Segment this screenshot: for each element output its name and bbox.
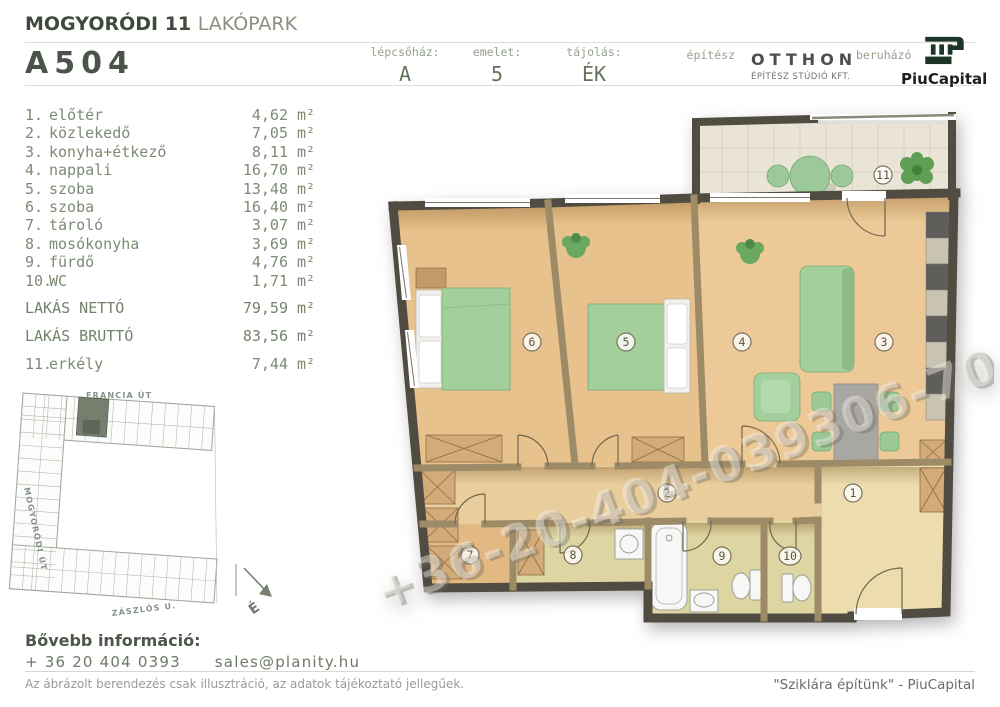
room-area: 8,11 bbox=[201, 143, 288, 161]
street-label-zaszlos-u: ZÁSZLÓS U. bbox=[111, 599, 177, 618]
architect-subtitle: ÉPÍTÉSZ STÚDIÓ KFT. bbox=[751, 72, 850, 82]
room-name: konyha+étkező bbox=[49, 143, 201, 161]
total-net-label: LAKÁS NETTÓ bbox=[25, 295, 201, 323]
room-area-unit: m² bbox=[288, 198, 330, 216]
meta-floor-label: emelet: bbox=[442, 45, 552, 59]
project-name-light: LAKÓPARK bbox=[198, 13, 297, 35]
room-name: mosókonyha bbox=[49, 235, 201, 253]
room-area: 13,48 bbox=[201, 180, 288, 198]
room-area-unit: m² bbox=[288, 161, 330, 179]
room-list-row: 1. előtér 4,62 m² bbox=[25, 106, 330, 124]
meta-orientation: tájolás: ÉK bbox=[539, 45, 649, 86]
room-label-1: 1 bbox=[850, 486, 857, 500]
room-list-row: 10. WC 1,71 m² bbox=[25, 272, 330, 290]
total-net-unit: m² bbox=[288, 295, 330, 323]
room-list-row: 4. nappali 16,70 m² bbox=[25, 161, 330, 179]
room-name: nappali bbox=[49, 161, 201, 179]
room-list-row: 2. közlekedő 7,05 m² bbox=[25, 124, 330, 142]
room-number: 8. bbox=[25, 235, 49, 253]
room-number: 10. bbox=[25, 272, 49, 290]
toilet-bowl bbox=[732, 573, 750, 599]
room-list-row: 8. mosókonyha 3,69 m² bbox=[25, 235, 330, 253]
footer-divider bbox=[25, 671, 975, 672]
room-area-unit: m² bbox=[288, 272, 330, 290]
toilet-tank bbox=[782, 574, 793, 602]
meta-orientation-label: tájolás: bbox=[539, 45, 649, 59]
datasheet-page: MOGYORÓDI 11 LAKÓPARK A504 lépcsőház: A … bbox=[0, 0, 1000, 707]
balcony-name: erkély bbox=[49, 351, 201, 379]
room-number: 4. bbox=[25, 161, 49, 179]
balcony-table bbox=[790, 156, 830, 196]
room-list-row: 5. szoba 13,48 m² bbox=[25, 180, 330, 198]
toilet-tank bbox=[750, 570, 761, 600]
site-plan-highlighted-unit bbox=[76, 397, 109, 437]
balcony-unit: m² bbox=[288, 351, 330, 379]
room-name: közlekedő bbox=[49, 124, 201, 142]
room-label-9: 9 bbox=[719, 549, 726, 563]
entry-door-opening bbox=[854, 608, 902, 620]
contact-email: sales@planity.hu bbox=[215, 653, 360, 671]
balcony-row: 11. erkély 7,44 m² bbox=[25, 351, 330, 379]
room-number: 9. bbox=[25, 253, 49, 271]
room-label-4: 4 bbox=[739, 335, 746, 349]
developer-name: PiuCapital bbox=[901, 70, 987, 88]
room-number: 3. bbox=[25, 143, 49, 161]
room-area: 3,07 bbox=[201, 216, 288, 234]
toilet-bowl bbox=[793, 575, 811, 601]
meta-orientation-value: ÉK bbox=[539, 62, 649, 86]
totals-block: LAKÁS NETTÓ 79,59 m² LAKÁS BRUTTÓ 83,56 … bbox=[25, 295, 330, 350]
room-area-unit: m² bbox=[288, 106, 330, 124]
room-label-5: 5 bbox=[623, 335, 630, 349]
total-gross-area: 83,56 bbox=[201, 323, 288, 351]
room-area-unit: m² bbox=[288, 143, 330, 161]
room-number: 6. bbox=[25, 198, 49, 216]
room-name: tároló bbox=[49, 216, 201, 234]
unit-code: A504 bbox=[25, 46, 135, 81]
room-list-row: 6. szoba 16,40 m² bbox=[25, 198, 330, 216]
contact-heading: Bővebb információ: bbox=[25, 631, 201, 650]
room-area: 3,69 bbox=[201, 235, 288, 253]
room-area-unit: m² bbox=[288, 124, 330, 142]
room-list: 1. előtér 4,62 m² 2. közlekedő 7,05 m² 3… bbox=[25, 106, 330, 290]
meta-floor-value: 5 bbox=[442, 62, 552, 86]
room-name: szoba bbox=[49, 180, 201, 198]
room-number: 2. bbox=[25, 124, 49, 142]
north-letter: É bbox=[245, 599, 263, 618]
piucapital-column-icon bbox=[921, 35, 967, 65]
room-list-row: 7. tároló 3,07 m² bbox=[25, 216, 330, 234]
room-name: előtér bbox=[49, 106, 201, 124]
room-number: 1. bbox=[25, 106, 49, 124]
room-area: 7,05 bbox=[201, 124, 288, 142]
room-list-row: 9. fürdő 4,76 m² bbox=[25, 253, 330, 271]
room-label-6: 6 bbox=[529, 335, 536, 349]
total-gross-label: LAKÁS BRUTTÓ bbox=[25, 323, 201, 351]
room-area-unit: m² bbox=[288, 253, 330, 271]
room-number: 5. bbox=[25, 180, 49, 198]
room-area-unit: m² bbox=[288, 216, 330, 234]
north-arrow-icon: É bbox=[236, 564, 272, 618]
room-area: 4,76 bbox=[201, 253, 288, 271]
room-number: 7. bbox=[25, 216, 49, 234]
contact-row: + 36 20 404 0393 sales@planity.hu bbox=[25, 653, 360, 671]
developer-logo: PiuCapital bbox=[901, 35, 987, 88]
page-title: MOGYORÓDI 11 LAKÓPARK bbox=[25, 13, 297, 35]
balcony-num: 11. bbox=[25, 351, 49, 379]
room-area: 1,71 bbox=[201, 272, 288, 290]
room-label-3: 3 bbox=[881, 335, 888, 349]
room-area: 4,62 bbox=[201, 106, 288, 124]
total-net-row: LAKÁS NETTÓ 79,59 m² bbox=[25, 295, 330, 323]
total-gross-unit: m² bbox=[288, 323, 330, 351]
room-name: WC bbox=[49, 272, 201, 290]
architect-label: építész bbox=[655, 48, 735, 62]
room-area: 16,70 bbox=[201, 161, 288, 179]
street-label-francia-ut: FRANCIA ÚT bbox=[86, 389, 152, 400]
room-label-11: 11 bbox=[876, 168, 890, 182]
floor-plan: 1 2 3 4 5 6 7 8 9 10 11 bbox=[372, 102, 994, 638]
room-list-row: 3. konyha+étkező 8,11 m² bbox=[25, 143, 330, 161]
architect-name: OTTHON bbox=[751, 50, 857, 69]
room-name: szoba bbox=[49, 198, 201, 216]
room-area-unit: m² bbox=[288, 235, 330, 253]
room-label-10: 10 bbox=[783, 549, 797, 563]
header-divider-top bbox=[25, 42, 975, 43]
meta-floor: emelet: 5 bbox=[442, 45, 552, 86]
room-name: fürdő bbox=[49, 253, 201, 271]
site-plan: FRANCIA ÚT MOGYORÓDI ÚT ZÁSZLÓS U. É bbox=[8, 384, 308, 630]
total-gross-row: LAKÁS BRUTTÓ 83,56 m² bbox=[25, 323, 330, 351]
contact-phone: + 36 20 404 0393 bbox=[25, 653, 181, 671]
room-area-unit: m² bbox=[288, 180, 330, 198]
project-name-bold: MOGYORÓDI 11 bbox=[25, 13, 191, 35]
footer-slogan: "Sziklára építünk" - PiuCapital bbox=[773, 677, 975, 693]
disclaimer-text: Az ábrázolt berendezés csak illusztráció… bbox=[25, 677, 464, 691]
total-net-area: 79,59 bbox=[201, 295, 288, 323]
room-area: 16,40 bbox=[201, 198, 288, 216]
balcony-area: 7,44 bbox=[201, 351, 288, 379]
